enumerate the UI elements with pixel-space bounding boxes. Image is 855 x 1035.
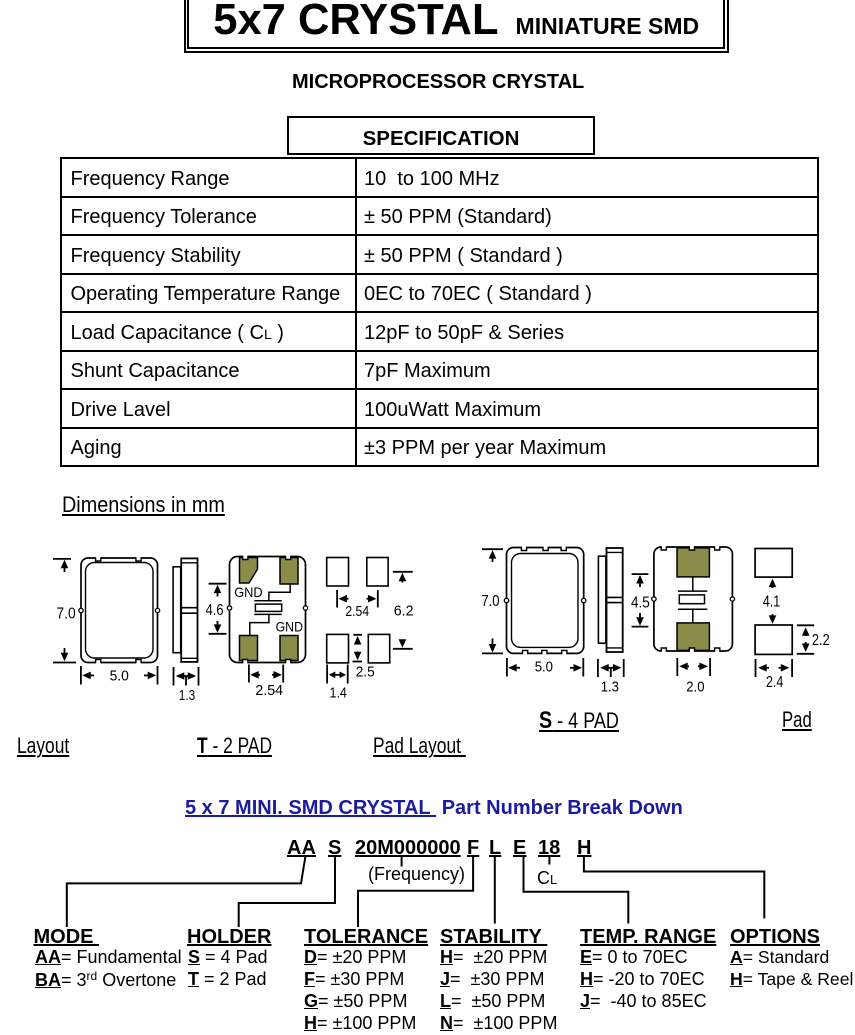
svg-text:1.4: 1.4 [330, 685, 347, 702]
svg-text:5.0: 5.0 [110, 669, 129, 685]
svg-text:2.4: 2.4 [766, 674, 784, 691]
svg-text:4.6: 4.6 [206, 602, 224, 619]
svg-text:6.2: 6.2 [394, 602, 414, 619]
svg-text:1.3: 1.3 [179, 687, 195, 704]
svg-text:4.1: 4.1 [763, 594, 780, 611]
svg-text:7.0: 7.0 [481, 593, 499, 610]
svg-text:2.54: 2.54 [345, 603, 369, 620]
svg-text:4.5: 4.5 [631, 594, 650, 611]
svg-text:1.3: 1.3 [601, 679, 619, 696]
svg-text:GND: GND [234, 584, 263, 600]
svg-text:GND: GND [276, 619, 303, 635]
svg-text:7.0: 7.0 [56, 606, 75, 623]
svg-text:5.0: 5.0 [535, 660, 553, 676]
svg-text:2.54: 2.54 [255, 682, 283, 699]
svg-text:2.2: 2.2 [812, 632, 830, 649]
svg-text:2.5: 2.5 [356, 663, 375, 680]
svg-text:2.0: 2.0 [686, 679, 704, 696]
